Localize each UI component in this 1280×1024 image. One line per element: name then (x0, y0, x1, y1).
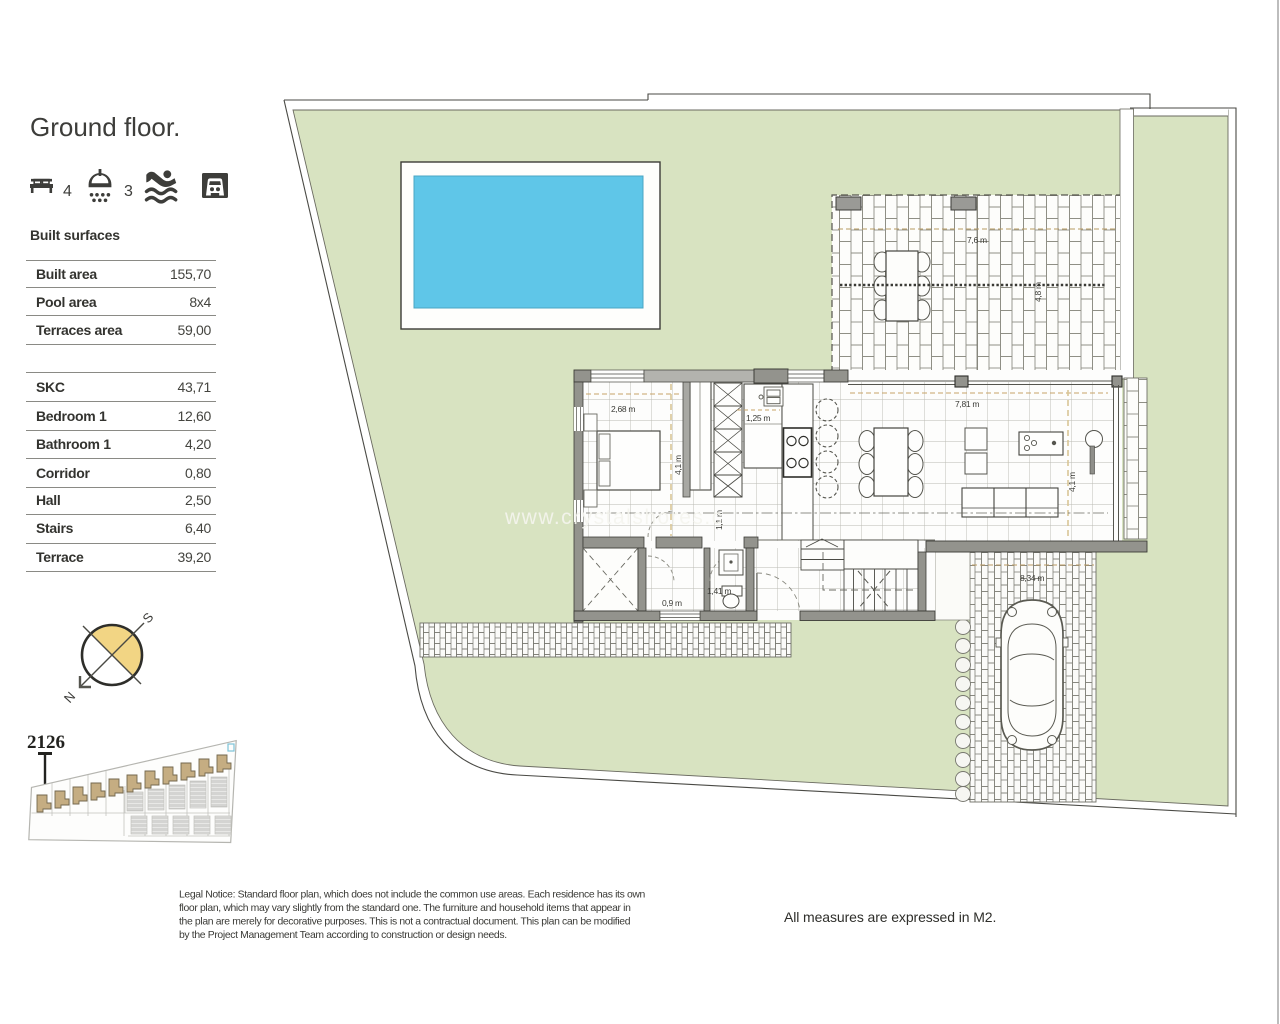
svg-text:7,6 m: 7,6 m (967, 235, 987, 245)
svg-text:4,1 m: 4,1 m (673, 455, 683, 475)
svg-text:Hall: Hall (36, 492, 60, 508)
svg-text:Bedroom 1: Bedroom 1 (36, 408, 107, 424)
svg-text:7,81 m: 7,81 m (955, 399, 979, 409)
svg-text:Corridor: Corridor (36, 465, 90, 481)
svg-text:www.crystalshores.c: www.crystalshores.c (504, 506, 724, 529)
svg-text:the plan are merely for decora: the plan are merely for decorative purpo… (179, 917, 631, 928)
svg-text:Legal Notice: Standard floor p: Legal Notice: Standard floor plan, which… (179, 890, 646, 901)
svg-text:8x4: 8x4 (189, 294, 211, 310)
svg-text:Bathroom 1: Bathroom 1 (36, 436, 111, 452)
svg-text:39,20: 39,20 (177, 549, 211, 565)
svg-text:All measures are expressed in: All measures are expressed in M2. (784, 909, 996, 925)
svg-text:SKC: SKC (36, 379, 65, 395)
svg-text:4: 4 (63, 183, 72, 200)
svg-text:Built surfaces: Built surfaces (30, 227, 120, 243)
svg-text:2126: 2126 (27, 732, 65, 753)
svg-text:6,40: 6,40 (185, 520, 212, 536)
svg-text:1,25 m: 1,25 m (746, 413, 770, 423)
svg-text:Built area: Built area (36, 266, 97, 282)
svg-text:Ground floor.: Ground floor. (30, 112, 180, 142)
svg-text:Terraces area: Terraces area (36, 322, 123, 338)
svg-text:3: 3 (124, 183, 133, 200)
svg-text:4,8 m: 4,8 m (1033, 282, 1043, 302)
svg-text:155,70: 155,70 (170, 266, 212, 282)
svg-text:Stairs: Stairs (36, 520, 74, 536)
svg-text:12,60: 12,60 (177, 408, 211, 424)
svg-text:4,20: 4,20 (185, 436, 212, 452)
svg-text:2,68 m: 2,68 m (611, 404, 635, 414)
svg-text:1,41 m: 1,41 m (707, 586, 731, 596)
svg-text:Pool area: Pool area (36, 294, 97, 310)
svg-text:by the Project Management Team: by the Project Management Team according… (179, 930, 507, 941)
svg-text:43,71: 43,71 (177, 379, 211, 395)
svg-text:Terrace: Terrace (36, 549, 84, 565)
svg-text:0,9 m: 0,9 m (662, 598, 682, 608)
svg-text:8,34 m: 8,34 m (1020, 573, 1044, 583)
svg-text:4,1 m: 4,1 m (1067, 472, 1077, 492)
svg-text:59,00: 59,00 (177, 322, 211, 338)
svg-text:2,50: 2,50 (185, 492, 212, 508)
svg-text:0,80: 0,80 (185, 465, 212, 481)
svg-text:floor plan, which may vary sli: floor plan, which may vary slightly from… (179, 903, 631, 914)
